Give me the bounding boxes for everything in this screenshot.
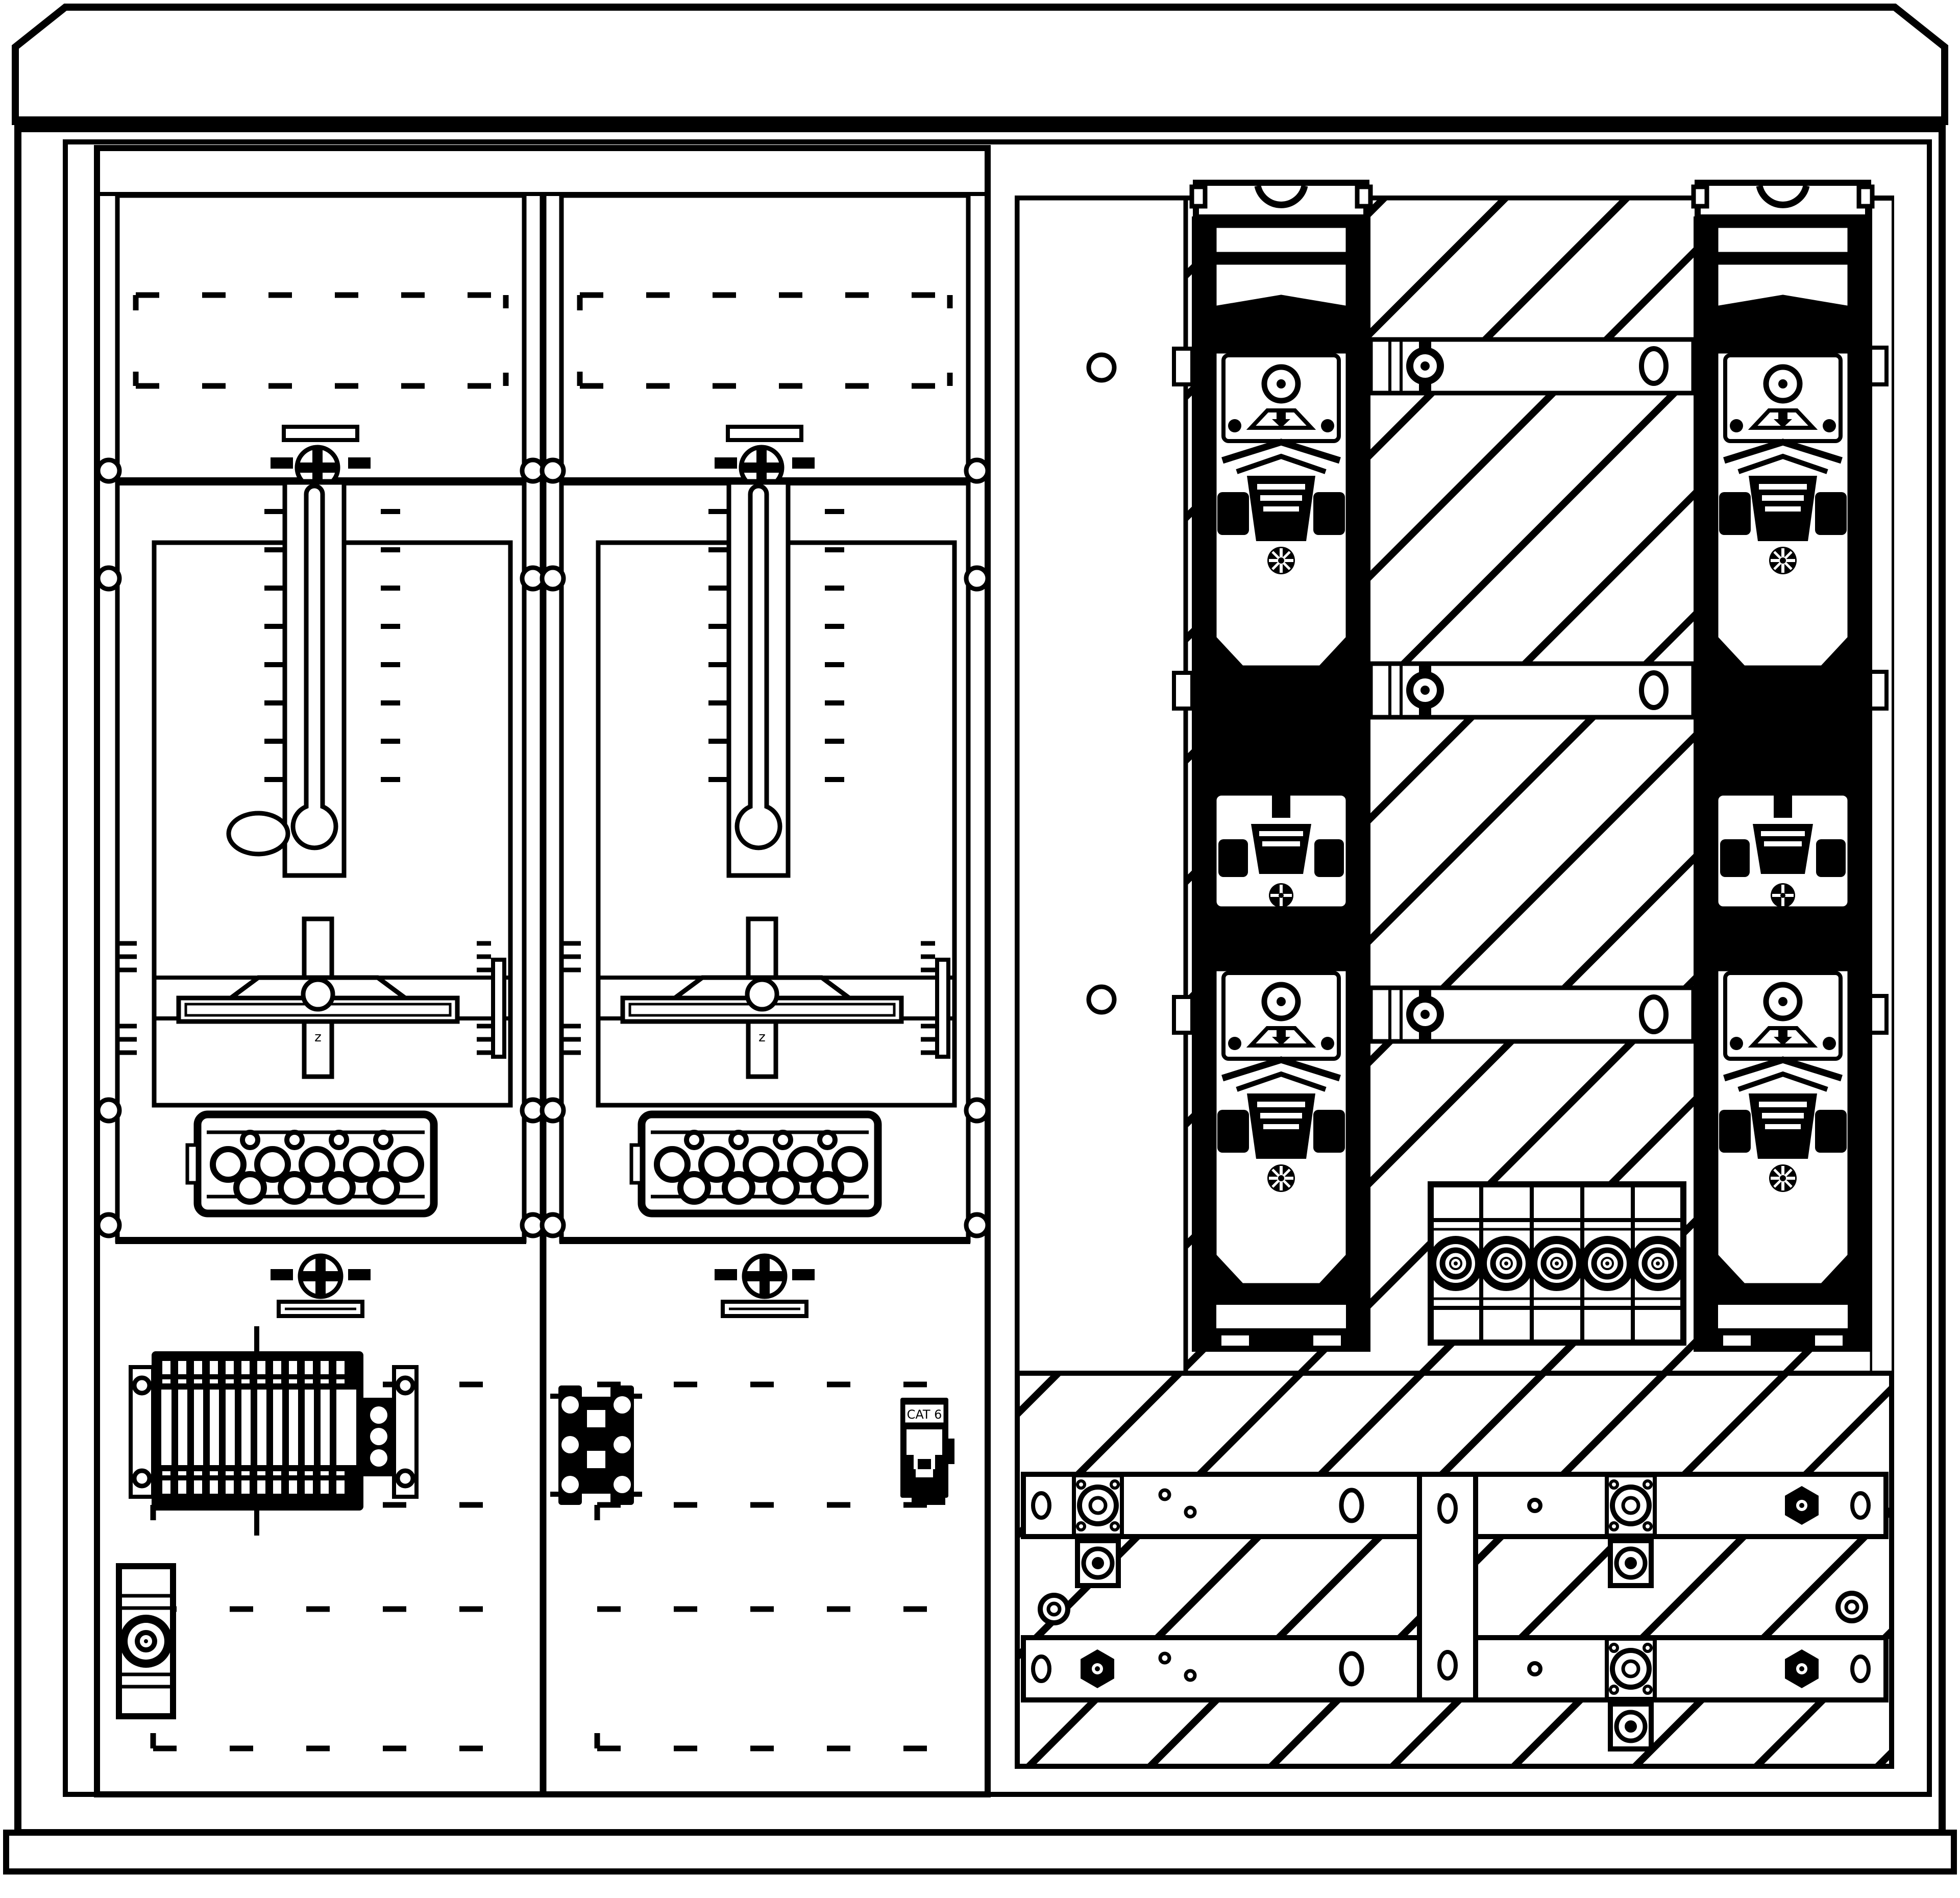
side-panel-hole — [1089, 355, 1114, 380]
terminal-block-5pole — [1431, 1184, 1683, 1343]
lower-busbar-field — [1017, 1373, 1892, 1766]
concentric-terminal-device — [119, 1566, 173, 1716]
fuse-strip-2 — [1694, 183, 1872, 1352]
side-panel-hole — [1089, 987, 1114, 1012]
cabinet-top-cap — [15, 7, 1945, 128]
cabinet-plinth — [6, 1833, 1954, 1871]
cabinet-drawing-page: z — [0, 0, 1960, 1898]
distribution-field — [1017, 183, 1892, 1766]
busbar-connector-block — [550, 1385, 642, 1505]
fuse-strip-1 — [1192, 183, 1370, 1352]
vertical-link-bar — [1419, 1474, 1476, 1700]
meter-fixing-eyelet — [229, 813, 288, 854]
cat6-label: CAT 6 — [907, 1407, 942, 1422]
cat6-network-jack: CAT 6 — [900, 1398, 954, 1505]
cabinet-technical-drawing: z — [0, 0, 1960, 1898]
